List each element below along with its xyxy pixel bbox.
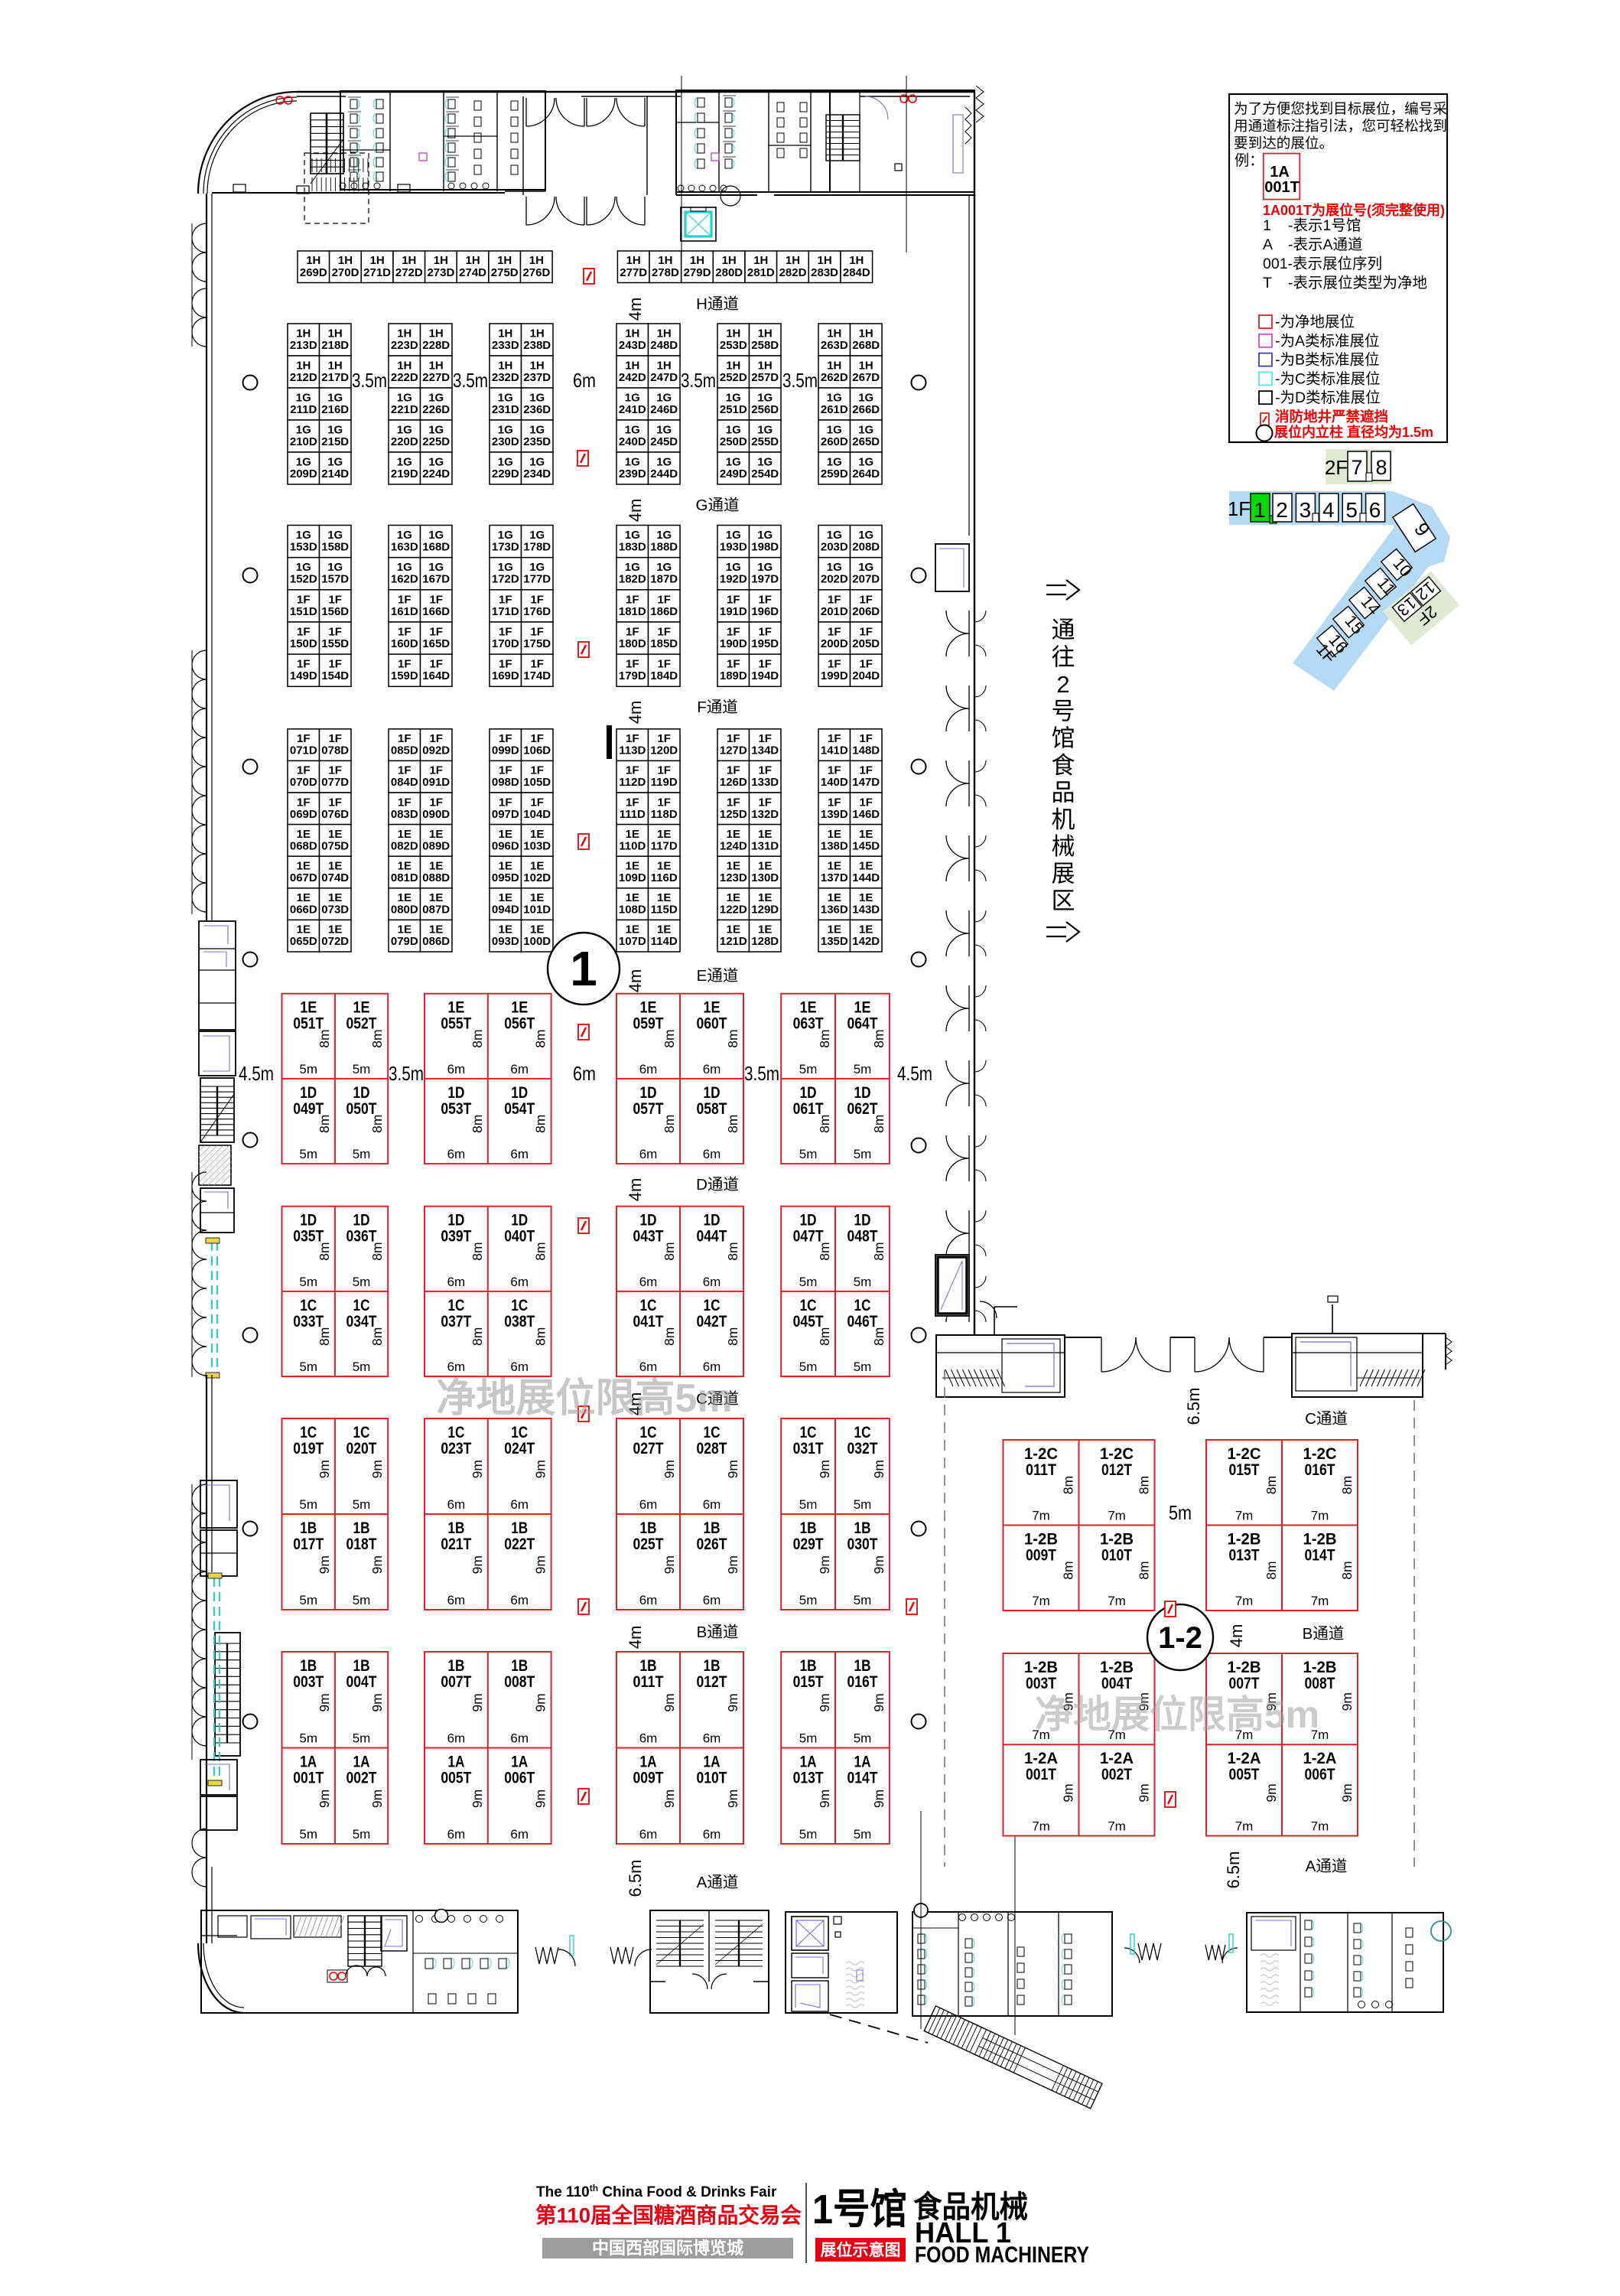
svg-text:1D: 1D [447,1212,464,1229]
svg-text:8m: 8m [1137,1561,1152,1579]
svg-text:通: 通 [1052,617,1075,643]
svg-text:019T: 019T [293,1440,324,1457]
svg-text:8m: 8m [662,1242,677,1260]
svg-text:F通道: F通道 [697,699,738,716]
svg-text:6m: 6m [639,1360,658,1374]
svg-text:1H: 1H [397,327,412,340]
svg-text:1G: 1G [625,529,640,542]
svg-text:9m: 9m [725,1790,740,1808]
svg-text:1H: 1H [758,327,773,340]
svg-text:209D: 209D [290,467,317,480]
svg-text:1E: 1E [328,923,342,936]
svg-text:2: 2 [1276,498,1288,522]
svg-text:1E: 1E [297,923,311,936]
svg-text:1H: 1H [625,327,639,340]
svg-text:-为B类标准展位: -为B类标准展位 [1275,352,1380,369]
svg-text:5m: 5m [799,1731,818,1746]
svg-text:1G: 1G [625,561,640,574]
svg-text:5m: 5m [799,1062,818,1076]
svg-text:097D: 097D [492,808,519,821]
svg-text:1F: 1F [1228,497,1251,520]
svg-text:1G: 1G [498,456,513,469]
svg-text:8m: 8m [317,1115,332,1133]
svg-text:4m: 4m [626,1178,645,1202]
svg-text:139D: 139D [821,808,848,821]
svg-text:-为C类标准展位: -为C类标准展位 [1275,370,1381,387]
svg-text:1G: 1G [397,561,412,574]
svg-text:1: 1 [1254,498,1266,522]
svg-text:1F: 1F [297,658,311,671]
svg-text:7m: 7m [1235,1819,1254,1834]
svg-text:1G: 1G [529,561,545,574]
svg-text:1E: 1E [429,828,443,841]
svg-text:104D: 104D [523,808,551,821]
svg-text:253D: 253D [720,339,747,352]
svg-text:5m: 5m [854,1275,872,1289]
svg-text:1F: 1F [398,764,412,777]
svg-text:9m: 9m [817,1460,832,1478]
svg-text:号: 号 [1052,698,1075,725]
svg-text:展: 展 [1052,861,1075,887]
svg-text:9m: 9m [725,1555,740,1574]
svg-text:218D: 218D [321,339,349,352]
svg-text:071D: 071D [290,744,317,757]
svg-text:109D: 109D [619,871,646,884]
svg-text:168D: 168D [422,541,450,554]
svg-text:282D: 282D [779,266,807,279]
svg-text:106D: 106D [523,744,551,757]
svg-text:1H: 1H [466,254,480,267]
svg-text:6m: 6m [447,1062,466,1076]
svg-text:219D: 219D [391,467,418,480]
svg-text:009T: 009T [633,1770,664,1787]
svg-text:B通道: B通道 [1303,1625,1345,1643]
svg-text:5m: 5m [353,1827,371,1842]
svg-text:095D: 095D [492,871,519,884]
svg-text:067D: 067D [290,871,317,884]
svg-text:1H: 1H [626,254,641,267]
svg-text:1F: 1F [297,796,311,809]
svg-text:1H: 1H [859,327,873,340]
svg-text:206D: 206D [852,605,880,618]
svg-text:187D: 187D [650,573,678,586]
svg-text:1G: 1G [397,529,412,542]
svg-text:1G: 1G [327,561,343,574]
svg-text:8m: 8m [1339,1476,1355,1494]
svg-text:9m: 9m [871,1460,886,1478]
svg-text:1D: 1D [300,1212,317,1229]
svg-text:176D: 176D [523,605,551,618]
svg-text:1B: 1B [854,1657,871,1675]
svg-text:8m: 8m [1137,1476,1152,1494]
svg-text:185D: 185D [650,637,678,650]
svg-text:080D: 080D [391,904,418,917]
svg-text:9m: 9m [725,1693,740,1711]
svg-text:8m: 8m [1264,1561,1279,1579]
svg-text:1C: 1C [854,1424,871,1441]
svg-text:135D: 135D [821,935,848,948]
svg-text:6m: 6m [573,1062,596,1085]
svg-text:053T: 053T [441,1100,471,1118]
svg-text:076D: 076D [321,808,349,821]
svg-text:3.5m: 3.5m [352,369,387,392]
svg-text:1F: 1F [727,626,740,639]
svg-text:5m: 5m [854,1827,872,1842]
svg-text:166D: 166D [422,605,450,618]
svg-text:161D: 161D [391,605,418,618]
svg-text:9m: 9m [1339,1783,1355,1802]
svg-text:1F: 1F [530,764,544,777]
svg-text:1F: 1F [657,764,671,777]
svg-text:-表示1号馆: -表示1号馆 [1288,217,1361,234]
svg-text:9m: 9m [317,1555,332,1574]
svg-text:8m: 8m [533,1115,548,1133]
svg-text:5m: 5m [353,1731,371,1746]
svg-text:1H: 1H [786,254,800,267]
svg-text:5m: 5m [854,1593,872,1607]
svg-text:6.5m: 6.5m [1184,1388,1203,1425]
svg-text:195D: 195D [751,637,779,650]
svg-text:1E: 1E [398,891,412,904]
svg-text:092D: 092D [422,744,450,757]
svg-text:1D: 1D [704,1084,721,1102]
svg-text:054T: 054T [504,1100,535,1118]
svg-text:1E: 1E [530,891,544,904]
svg-text:6m: 6m [703,1731,721,1746]
svg-text:250D: 250D [720,435,747,448]
svg-text:030T: 030T [847,1536,878,1553]
svg-text:068D: 068D [290,839,317,852]
svg-text:148D: 148D [852,744,880,757]
svg-text:1F: 1F [429,796,443,809]
svg-text:3.5m: 3.5m [744,1062,779,1085]
svg-text:029T: 029T [793,1536,824,1553]
svg-text:1F: 1F [758,732,772,745]
svg-text:169D: 169D [492,669,519,682]
svg-text:127D: 127D [720,744,747,757]
svg-text:6m: 6m [639,1593,658,1607]
svg-text:116D: 116D [651,871,678,884]
svg-text:015T: 015T [1229,1461,1260,1479]
svg-text:1F: 1F [429,626,443,639]
svg-text:132D: 132D [751,808,779,821]
svg-text:1E: 1E [657,891,671,904]
svg-text:025T: 025T [633,1536,664,1553]
svg-text:261D: 261D [821,403,848,416]
svg-text:267D: 267D [852,371,880,384]
svg-text:1C: 1C [800,1297,817,1314]
svg-text:1E: 1E [859,828,873,841]
svg-text:179D: 179D [619,669,646,682]
svg-text:1G: 1G [296,529,311,542]
svg-text:091D: 091D [422,776,450,789]
svg-text:6m: 6m [573,369,596,392]
svg-text:1H: 1H [827,327,841,340]
svg-text:7m: 7m [1235,1509,1254,1523]
svg-text:138D: 138D [821,839,848,852]
svg-text:5m: 5m [299,1731,317,1746]
svg-text:1-2B: 1-2B [1303,1531,1337,1549]
svg-text:257D: 257D [751,371,779,384]
svg-text:1G: 1G [625,392,640,405]
svg-text:238D: 238D [523,339,551,352]
svg-text:031T: 031T [793,1440,824,1457]
svg-text:1E: 1E [657,923,671,936]
svg-text:1F: 1F [626,732,639,745]
svg-text:085D: 085D [391,744,418,757]
svg-text:8m: 8m [725,1242,740,1260]
svg-text:008T: 008T [1305,1675,1335,1692]
svg-text:7m: 7m [1311,1509,1329,1523]
svg-text:2F: 2F [1325,456,1348,479]
svg-text:107D: 107D [619,935,646,948]
svg-text:1G: 1G [827,456,842,469]
svg-text:1G: 1G [858,424,873,437]
svg-text:1G: 1G [428,424,444,437]
svg-text:1G: 1G [726,392,741,405]
svg-text:105D: 105D [523,776,551,789]
svg-text:8m: 8m [533,1029,548,1047]
svg-text:240D: 240D [619,435,646,448]
svg-text:9m: 9m [533,1693,548,1711]
svg-text:1G: 1G [858,456,873,469]
svg-text:1B: 1B [640,1657,657,1675]
svg-text:230D: 230D [492,435,519,448]
svg-text:1C: 1C [300,1424,317,1441]
svg-text:G通道: G通道 [696,497,740,514]
svg-text:9m: 9m [662,1555,677,1574]
svg-text:7m: 7m [1311,1819,1329,1834]
svg-text:021T: 021T [441,1536,471,1553]
svg-text:1G: 1G [529,424,545,437]
svg-text:1H: 1H [859,360,873,373]
svg-text:212D: 212D [290,371,317,384]
svg-text:094D: 094D [492,904,519,917]
svg-text:品: 品 [1052,779,1075,806]
svg-text:1F: 1F [727,658,740,671]
svg-text:械: 械 [1052,833,1075,860]
svg-text:4m: 4m [626,499,645,523]
svg-text:1F: 1F [328,626,342,639]
svg-text:1-2: 1-2 [1158,1621,1202,1655]
svg-text:1D: 1D [854,1212,871,1229]
svg-text:1-2C: 1-2C [1228,1445,1261,1463]
svg-text:1D: 1D [704,1212,721,1229]
svg-text:1C: 1C [640,1424,657,1441]
svg-text:9m: 9m [662,1693,677,1711]
svg-text:1G: 1G [858,392,873,405]
svg-text:156D: 156D [321,605,349,618]
svg-text:032T: 032T [847,1440,878,1457]
svg-text:A: A [1263,236,1273,253]
svg-text:155D: 155D [321,637,349,650]
svg-text:099D: 099D [492,744,519,757]
svg-text:6.5m: 6.5m [626,1860,645,1897]
svg-text:6: 6 [1369,498,1381,522]
svg-text:146D: 146D [852,808,880,821]
svg-text:5m: 5m [799,1497,818,1512]
svg-text:A通道: A通道 [697,1874,739,1891]
svg-text:The 110th China Food & Drinks: The 110th China Food & Drinks Fair [536,2183,777,2200]
svg-text:1H: 1H [296,360,311,373]
svg-text:214D: 214D [321,467,349,480]
svg-text:012T: 012T [1101,1461,1132,1479]
svg-text:FOOD MACHINERY: FOOD MACHINERY [915,2242,1089,2268]
svg-text:1E: 1E [297,891,311,904]
svg-text:072D: 072D [321,935,349,948]
svg-text:6m: 6m [447,1275,466,1289]
svg-text:1C: 1C [511,1424,528,1441]
svg-text:第110届全国糖酒商品交易会: 第110届全国糖酒商品交易会 [535,2203,802,2227]
svg-text:1D: 1D [353,1084,370,1102]
svg-text:1G: 1G [858,561,873,574]
svg-text:001T: 001T [293,1770,324,1787]
svg-text:227D: 227D [422,371,450,384]
svg-text:1号馆: 1号馆 [812,2187,907,2232]
svg-text:1F: 1F [828,764,841,777]
svg-text:255D: 255D [751,435,779,448]
svg-text:9m: 9m [1264,1783,1279,1802]
svg-text:010T: 010T [697,1770,727,1787]
svg-text:8m: 8m [871,1029,886,1047]
svg-text:1H: 1H [818,254,832,267]
svg-text:205D: 205D [852,637,880,650]
svg-text:221D: 221D [391,403,418,416]
svg-text:6m: 6m [703,1147,721,1161]
svg-text:1G: 1G [656,529,672,542]
svg-text:4m: 4m [626,701,645,725]
svg-text:175D: 175D [523,637,551,650]
svg-text:1G: 1G [858,529,873,542]
svg-text:1F: 1F [530,593,544,606]
svg-text:9m: 9m [871,1790,886,1808]
svg-text:C通道: C通道 [1305,1410,1348,1428]
svg-text:8m: 8m [317,1242,332,1260]
svg-text:083D: 083D [391,808,418,821]
svg-text:022T: 022T [504,1536,535,1553]
svg-text:1H: 1H [497,254,512,267]
svg-text:1G: 1G [827,561,842,574]
svg-text:1E: 1E [429,860,443,873]
svg-text:041T: 041T [633,1313,664,1330]
svg-text:3.5m: 3.5m [389,1062,424,1085]
svg-text:1E: 1E [300,999,317,1017]
svg-text:1E: 1E [859,860,873,873]
svg-text:263D: 263D [821,339,848,352]
svg-text:机: 机 [1052,806,1075,833]
svg-text:055T: 055T [441,1015,471,1033]
svg-text:1F: 1F [398,593,412,606]
svg-text:269D: 269D [300,266,327,279]
svg-text:279D: 279D [684,266,711,279]
svg-text:1F: 1F [530,658,544,671]
svg-text:163D: 163D [391,541,418,554]
svg-text:消防地井严禁遮挡: 消防地井严禁遮挡 [1275,409,1388,425]
svg-text:044T: 044T [697,1228,727,1246]
svg-text:9m: 9m [817,1555,832,1574]
svg-text:119D: 119D [651,776,678,789]
svg-text:1F: 1F [499,658,512,671]
svg-text:1F: 1F [727,796,740,809]
svg-text:143D: 143D [852,904,880,917]
svg-text:1D: 1D [511,1084,528,1102]
svg-text:1A: 1A [800,1754,817,1771]
svg-text:1F: 1F [828,593,841,606]
svg-text:1B: 1B [300,1657,317,1675]
svg-text:008T: 008T [504,1673,535,1691]
svg-text:128D: 128D [751,935,779,948]
svg-text:123D: 123D [720,871,747,884]
svg-text:188D: 188D [650,541,678,554]
svg-text:1H: 1H [658,254,672,267]
svg-text:5m: 5m [353,1062,371,1076]
svg-text:6m: 6m [703,1593,721,1607]
svg-text:1H: 1H [397,360,412,373]
svg-text:247D: 247D [650,371,678,384]
svg-text:1G: 1G [757,424,773,437]
svg-text:1C: 1C [640,1297,657,1314]
svg-text:1E: 1E [828,923,841,936]
svg-text:184D: 184D [650,669,678,682]
svg-text:净地展位限高5m: 净地展位限高5m [1035,1693,1319,1736]
svg-text:077D: 077D [321,776,349,789]
svg-text:T: T [1263,275,1272,291]
svg-text:1C: 1C [704,1424,721,1441]
svg-text:007T: 007T [1229,1675,1260,1692]
svg-text:1G: 1G [397,424,412,437]
svg-text:5m: 5m [353,1593,371,1607]
svg-text:1E: 1E [328,891,342,904]
svg-text:1F: 1F [499,593,512,606]
svg-text:1D: 1D [300,1084,317,1102]
svg-text:208D: 208D [852,541,880,554]
svg-text:1B: 1B [300,1519,317,1537]
svg-text:1G: 1G [296,424,311,437]
svg-text:5m: 5m [299,1062,317,1076]
svg-text:4m: 4m [626,298,645,321]
svg-text:-为A类标准展位: -为A类标准展位 [1275,333,1380,350]
svg-text:1C: 1C [800,1424,817,1441]
svg-text:1D: 1D [640,1212,657,1229]
svg-text:038T: 038T [504,1313,535,1330]
svg-text:276D: 276D [522,266,550,279]
svg-text:6.5m: 6.5m [1224,1851,1243,1889]
svg-text:6m: 6m [447,1497,466,1512]
svg-text:8m: 8m [871,1115,886,1133]
svg-text:1E: 1E [499,860,512,873]
svg-text:225D: 225D [422,435,450,448]
svg-text:1F: 1F [297,764,311,777]
svg-text:1-2B: 1-2B [1303,1659,1337,1676]
svg-text:1B: 1B [800,1657,817,1675]
svg-text:6m: 6m [447,1360,466,1374]
svg-text:6m: 6m [510,1497,529,1512]
svg-text:131D: 131D [751,839,779,852]
svg-text:207D: 207D [852,573,880,586]
svg-text:1F: 1F [626,593,639,606]
svg-text:1A: 1A [854,1754,871,1771]
svg-text:1H: 1H [328,327,343,340]
svg-text:133D: 133D [751,776,779,789]
svg-text:249D: 249D [720,467,747,480]
svg-text:1G: 1G [397,456,412,469]
svg-text:223D: 223D [391,339,418,352]
svg-text:1G: 1G [726,561,741,574]
svg-text:5m: 5m [854,1147,872,1161]
svg-text:5m: 5m [299,1497,317,1512]
svg-text:1E: 1E [640,999,657,1017]
svg-text:1G: 1G [656,392,672,405]
